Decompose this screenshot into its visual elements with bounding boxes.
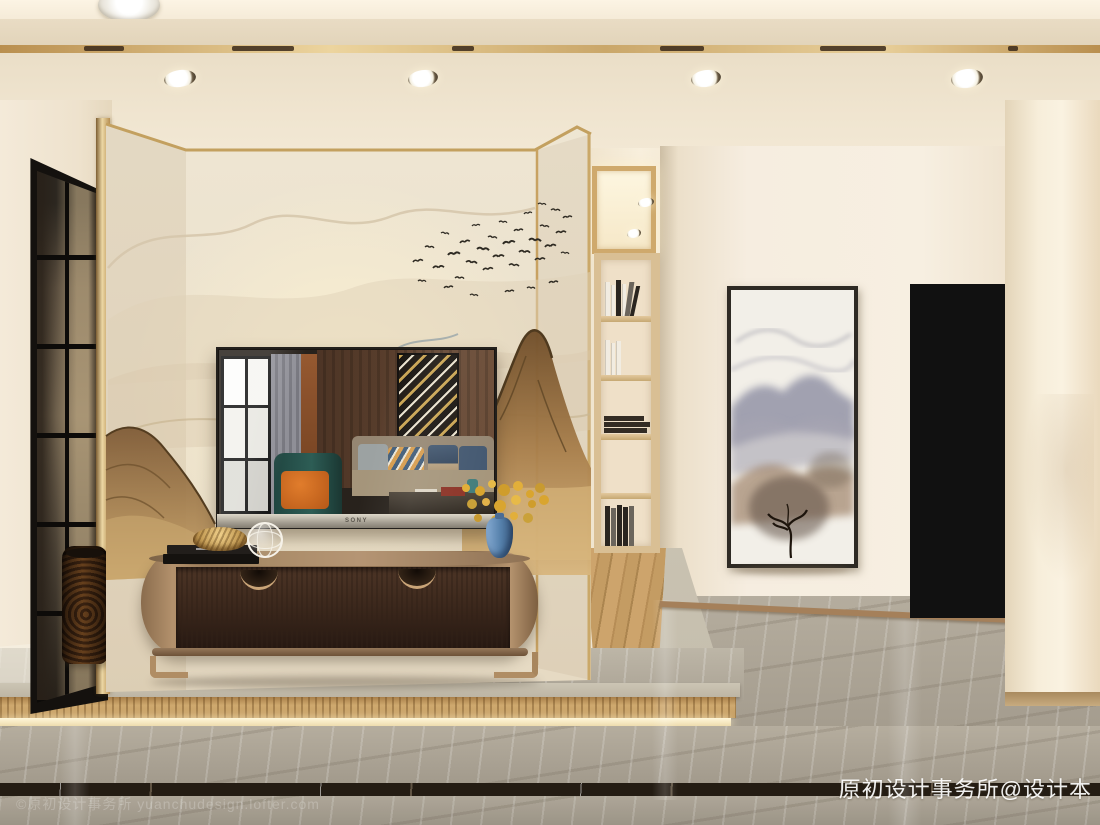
book	[605, 340, 610, 375]
yellow-flowers	[462, 484, 470, 492]
cabinet-foot	[494, 652, 538, 678]
step-riser-travertine	[0, 697, 736, 718]
wall-mounted-tv: SONY	[216, 347, 497, 529]
shelf	[601, 316, 651, 322]
trim-reflection	[232, 46, 294, 51]
hallway-recessed-light-panel	[592, 166, 656, 254]
book-stack	[604, 428, 647, 433]
book	[616, 280, 621, 316]
ceiling-upper-strip	[0, 0, 1100, 19]
book	[617, 505, 622, 546]
painting-art	[731, 290, 854, 564]
tv-brand-logo: SONY	[345, 518, 368, 524]
tv-screen-reflection	[219, 350, 494, 514]
book	[611, 285, 615, 316]
ink-wash-painting	[727, 286, 858, 568]
cabinet-foot	[150, 656, 188, 678]
interior-rendering: SONY ©原初设计事务所 yuanchudesign.lofter.com 原…	[0, 0, 1100, 825]
cabinet-front-panel	[176, 567, 510, 653]
dark-grid-door	[910, 284, 1008, 618]
trim-reflection	[452, 46, 474, 51]
niche-bookshelf	[594, 253, 660, 553]
trim-reflection	[660, 46, 704, 51]
shelf	[601, 434, 651, 440]
painting-shadow	[737, 566, 849, 575]
book	[616, 341, 621, 375]
trim-reflection	[1008, 46, 1018, 51]
cabinet-shadow	[150, 676, 540, 688]
cabinet-bottom-frame	[152, 648, 528, 656]
book	[605, 282, 610, 316]
gold-woven-bowl	[193, 527, 247, 551]
shelf	[601, 493, 651, 499]
ceiling-fascia	[0, 19, 1100, 46]
painting-canvas	[731, 290, 854, 564]
screen-glare	[219, 350, 494, 514]
trim-reflection	[820, 46, 886, 51]
decor-book	[163, 554, 259, 564]
floor-reflection-streak	[652, 600, 678, 800]
book-stack	[604, 422, 650, 427]
book	[605, 506, 610, 546]
book	[623, 507, 628, 546]
shelf	[601, 375, 651, 381]
wire-sphere-ornament	[247, 522, 283, 558]
watermark-right: 原初设计事务所@设计本	[0, 772, 1092, 804]
trim-reflection	[84, 46, 124, 51]
book-stack	[604, 416, 644, 421]
column-baseboard	[1005, 692, 1100, 706]
gold-trim-groove	[0, 45, 1100, 53]
carved-wood-vase	[62, 546, 108, 664]
book	[629, 506, 634, 546]
wall-column	[1005, 100, 1100, 704]
book	[611, 343, 615, 375]
book	[611, 508, 616, 546]
